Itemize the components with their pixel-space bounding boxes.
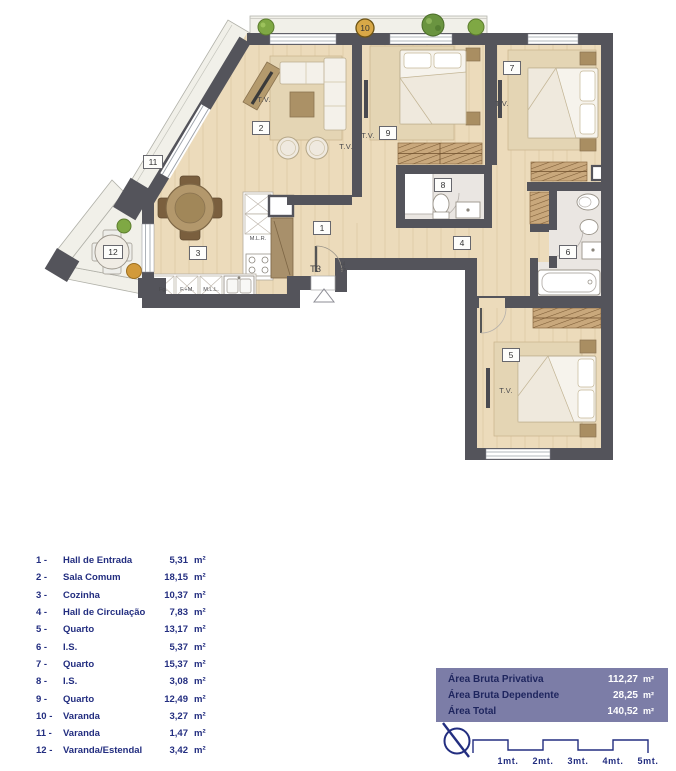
fg-label: Fg.	[159, 287, 168, 293]
legend-row: 6 -I.S.5,37m²	[36, 638, 206, 655]
svg-text:5: 5	[509, 350, 514, 360]
shower	[403, 172, 433, 214]
legend-unit: m²	[188, 642, 206, 653]
tv-label: T.V.	[257, 95, 270, 104]
plant	[117, 219, 131, 233]
summary-unit: m²	[638, 706, 660, 716]
legend-room-name: Hall de Entrada	[63, 555, 160, 566]
room-badge-4: 4	[454, 237, 471, 250]
legend-room-name: Sala Comum	[63, 572, 160, 583]
legend-row: 10 -Varanda3,27m²	[36, 708, 206, 725]
scale-label: 4mt.	[603, 756, 624, 766]
legend-number: 11 -	[36, 728, 63, 739]
coffee-table	[290, 92, 314, 117]
mlr-label: M.L.R.	[250, 236, 267, 242]
room-badge-6: 6	[560, 246, 577, 259]
room-badge-12: 12	[104, 246, 123, 259]
scale-label: 2mt.	[533, 756, 554, 766]
north-compass	[443, 723, 470, 757]
tree	[422, 14, 444, 36]
summary-unit: m²	[638, 674, 660, 684]
legend-area: 3,08	[160, 676, 188, 687]
legend-unit: m²	[188, 555, 206, 566]
legend-room-name: Hall de Circulação	[63, 607, 160, 618]
tv-label: T.V.	[499, 386, 512, 395]
legend-area: 15,37	[160, 659, 188, 670]
summary-value: 140,52	[607, 706, 638, 717]
legend-unit: m²	[188, 728, 206, 739]
summary-row: Área Bruta Dependente28,25m²	[436, 687, 668, 703]
legend-unit: m²	[188, 694, 206, 705]
legend-area: 13,17	[160, 624, 188, 635]
tv-label: T.V.	[495, 99, 508, 108]
legend-area: 10,37	[160, 590, 188, 601]
legend-unit: m²	[188, 624, 206, 635]
legend-row: 5 -Quarto13,17m²	[36, 621, 206, 638]
toilet	[577, 194, 599, 210]
unit-type-label: T3	[310, 264, 321, 275]
scale-label: 1mt.	[498, 756, 519, 766]
summary-label: Área Bruta Privativa	[448, 674, 608, 685]
legend-room-name: Quarto	[63, 659, 160, 670]
svg-text:9: 9	[386, 128, 391, 138]
legend-row: 7 -Quarto15,37m²	[36, 656, 206, 673]
legend-area: 12,49	[160, 694, 188, 705]
summary-value: 112,27	[608, 674, 638, 685]
legend-unit: m²	[188, 711, 206, 722]
room-badge-11: 11	[144, 156, 163, 169]
legend-room-name: Varanda	[63, 711, 160, 722]
scale-bar: 1mt. 2mt. 3mt. 4mt. 5mt.	[473, 740, 658, 766]
legend-number: 10 -	[36, 711, 63, 722]
svg-text:3: 3	[196, 248, 201, 258]
room-badge-2: 2	[253, 122, 270, 135]
summary-row: Área Bruta Privativa112,27m²	[436, 671, 668, 687]
legend-number: 2 -	[36, 572, 63, 583]
room-badge-7: 7	[504, 62, 521, 75]
legend-room-name: Cozinha	[63, 590, 160, 601]
legend-number: 4 -	[36, 607, 63, 618]
toilet	[433, 194, 449, 214]
svg-text:6: 6	[566, 247, 571, 257]
tv-label: T.V.	[361, 131, 374, 140]
floor-plan-page: 1 2 3 4 5 6 7 8 9 10 11 12 T.V. T.V. T.V…	[0, 0, 676, 771]
legend-row: 8 -I.S.3,08m²	[36, 673, 206, 690]
legend-number: 1 -	[36, 555, 63, 566]
svg-text:11: 11	[149, 157, 158, 167]
svg-text:10: 10	[360, 23, 370, 33]
legend-number: 12 -	[36, 745, 63, 756]
legend-area: 3,27	[160, 711, 188, 722]
summary-label: Área Total	[448, 706, 607, 717]
legend-row: 11 -Varanda1,47m²	[36, 725, 206, 742]
legend-unit: m²	[188, 745, 206, 756]
legend-area: 1,47	[160, 728, 188, 739]
legend-row: 2 -Sala Comum18,15m²	[36, 569, 206, 586]
area-summary-panel: Área Bruta Privativa112,27m² Área Bruta …	[436, 668, 668, 722]
legend-number: 8 -	[36, 676, 63, 687]
legend-number: 6 -	[36, 642, 63, 653]
legend-number: 9 -	[36, 694, 63, 705]
summary-row: Área Total140,52m²	[436, 703, 668, 719]
room-legend: 1 -Hall de Entrada5,31m² 2 -Sala Comum18…	[36, 552, 206, 760]
scale-label: 5mt.	[638, 756, 659, 766]
hob	[246, 254, 271, 276]
fm-label: F.+M.	[180, 287, 194, 293]
legend-unit: m²	[188, 590, 206, 601]
legend-room-name: Varanda/Estendal	[63, 745, 160, 756]
room-badge-8: 8	[435, 179, 452, 192]
legend-area: 5,37	[160, 642, 188, 653]
svg-text:1: 1	[320, 223, 325, 233]
svg-text:4: 4	[460, 238, 465, 248]
qe-label: Q.E.	[341, 260, 347, 272]
legend-room-name: I.S.	[63, 642, 160, 653]
room-badge-3: 3	[190, 247, 207, 260]
legend-room-name: I.S.	[63, 676, 160, 687]
legend-unit: m²	[188, 572, 206, 583]
summary-label: Área Bruta Dependente	[448, 690, 613, 701]
tv-label: T.V.	[339, 142, 352, 151]
legend-area: 3,42	[160, 745, 188, 756]
legend-row: 4 -Hall de Circulação7,83m²	[36, 604, 206, 621]
plant	[468, 19, 484, 35]
legend-area: 5,31	[160, 555, 188, 566]
legend-number: 5 -	[36, 624, 63, 635]
room-badge-1: 1	[314, 222, 331, 235]
legend-row: 1 -Hall de Entrada5,31m²	[36, 552, 206, 569]
legend-area: 7,83	[160, 607, 188, 618]
room-badge-10: 10	[356, 19, 374, 37]
scale-label: 3mt.	[568, 756, 589, 766]
legend-row: 12 -Varanda/Estendal3,42m²	[36, 742, 206, 759]
svg-text:12: 12	[108, 247, 118, 257]
legend-unit: m²	[188, 676, 206, 687]
summary-unit: m²	[638, 690, 660, 700]
sofa-chaise	[324, 58, 346, 130]
legend-room-name: Quarto	[63, 624, 160, 635]
room-badge-9: 9	[380, 127, 397, 140]
summary-value: 28,25	[613, 690, 638, 701]
legend-row: 3 -Cozinha10,37m²	[36, 587, 206, 604]
mll-label: M.L.L.	[203, 287, 219, 293]
svg-text:2: 2	[259, 123, 264, 133]
svg-text:8: 8	[441, 180, 446, 190]
legend-room-name: Quarto	[63, 694, 160, 705]
legend-row: 9 -Quarto12,49m²	[36, 690, 206, 707]
legend-unit: m²	[188, 659, 206, 670]
legend-number: 7 -	[36, 659, 63, 670]
svg-text:7: 7	[510, 63, 515, 73]
legend-number: 3 -	[36, 590, 63, 601]
plant	[258, 19, 274, 35]
legend-area: 18,15	[160, 572, 188, 583]
legend-unit: m²	[188, 607, 206, 618]
plant	[127, 264, 142, 279]
entrance-marker	[314, 289, 334, 302]
legend-room-name: Varanda	[63, 728, 160, 739]
room-badge-5: 5	[503, 349, 520, 362]
